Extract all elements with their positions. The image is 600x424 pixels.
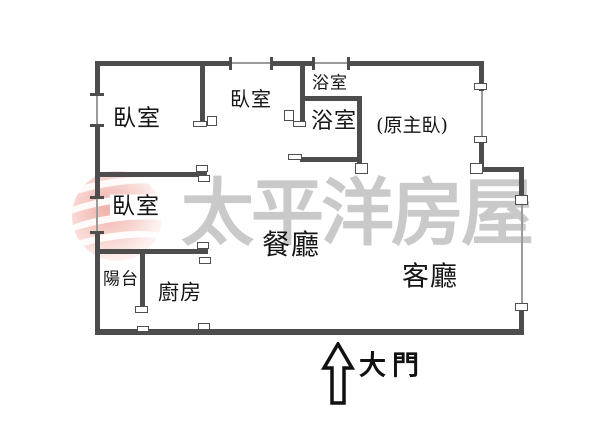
- wall-top-segment-1: [95, 61, 232, 66]
- window-sill-marker: [474, 83, 487, 90]
- door-marker: [199, 257, 211, 264]
- wall-bottom: [95, 329, 524, 335]
- wall-top-segment-3: [348, 61, 484, 66]
- room-label-master-note: (原主臥): [376, 117, 448, 136]
- room-label-bedroom-top-left: 臥室: [113, 108, 161, 131]
- watermark-brand-text: 太平洋房屋: [181, 177, 531, 250]
- room-label-living: 客廳: [402, 264, 458, 291]
- door-marker: [293, 121, 306, 127]
- wall-right-step-horizontal: [479, 167, 524, 172]
- window-top-2: [314, 62, 349, 64]
- door-marker: [470, 163, 483, 174]
- door-marker: [193, 121, 207, 127]
- room-label-balcony: 陽台: [103, 272, 139, 289]
- door-marker: [196, 165, 208, 172]
- wall-bathroom-right: [357, 96, 362, 170]
- wall-bathroom-left: [300, 61, 305, 122]
- window-tick: [90, 93, 104, 96]
- window-tick: [270, 57, 273, 70]
- window-tick: [347, 57, 350, 70]
- wall-left-segment-2: [95, 126, 100, 198]
- wall-top-segment-2: [271, 61, 315, 66]
- door-marker: [515, 195, 528, 205]
- room-label-dining: 餐廳: [262, 231, 320, 259]
- wall-balcony-divider: [140, 254, 145, 308]
- door-marker: [198, 175, 210, 182]
- door-marker: [197, 242, 209, 249]
- entrance-arrow-up-icon: [321, 342, 355, 406]
- wall-bedroom-topleft-bottom: [95, 172, 207, 177]
- window-sill-marker: [474, 136, 487, 143]
- wall-bathroom-middle: [300, 96, 362, 101]
- window-tick: [90, 196, 104, 199]
- window-tick: [229, 57, 232, 70]
- wall-bathroom-bottom: [300, 157, 357, 162]
- window-sill-marker: [515, 303, 528, 311]
- room-label-bathroom-lower: 浴室: [311, 111, 357, 133]
- window-tick: [312, 57, 315, 70]
- room-label-bathroom-upper: 浴室: [312, 76, 348, 93]
- window-left-2: [96, 197, 98, 234]
- door-marker: [207, 116, 217, 126]
- room-label-bedroom-lower-left: 臥室: [110, 195, 162, 220]
- door-marker: [137, 326, 149, 332]
- wall-right-lower: [519, 311, 524, 335]
- door-marker: [284, 110, 294, 121]
- door-marker: [288, 154, 302, 160]
- window-top-1: [231, 62, 272, 64]
- floor-plan: 太平洋房屋 臥室 臥室 臥室: [0, 0, 600, 424]
- window-tick: [90, 124, 104, 127]
- door-marker: [135, 306, 148, 313]
- door-marker: [355, 163, 368, 174]
- room-label-bedroom-middle: 臥室: [230, 89, 272, 109]
- entrance-label: 大門: [359, 353, 425, 380]
- wall-left-segment-1: [95, 61, 100, 94]
- window-tick: [90, 231, 104, 234]
- window-left-1: [96, 94, 98, 127]
- wall-bedroom-divider: [200, 61, 205, 122]
- window-right-2: [521, 205, 523, 305]
- room-label-kitchen: 廚房: [158, 283, 202, 304]
- door-marker: [198, 323, 210, 330]
- wall-bedroom-lowerleft-bottom: [95, 249, 208, 254]
